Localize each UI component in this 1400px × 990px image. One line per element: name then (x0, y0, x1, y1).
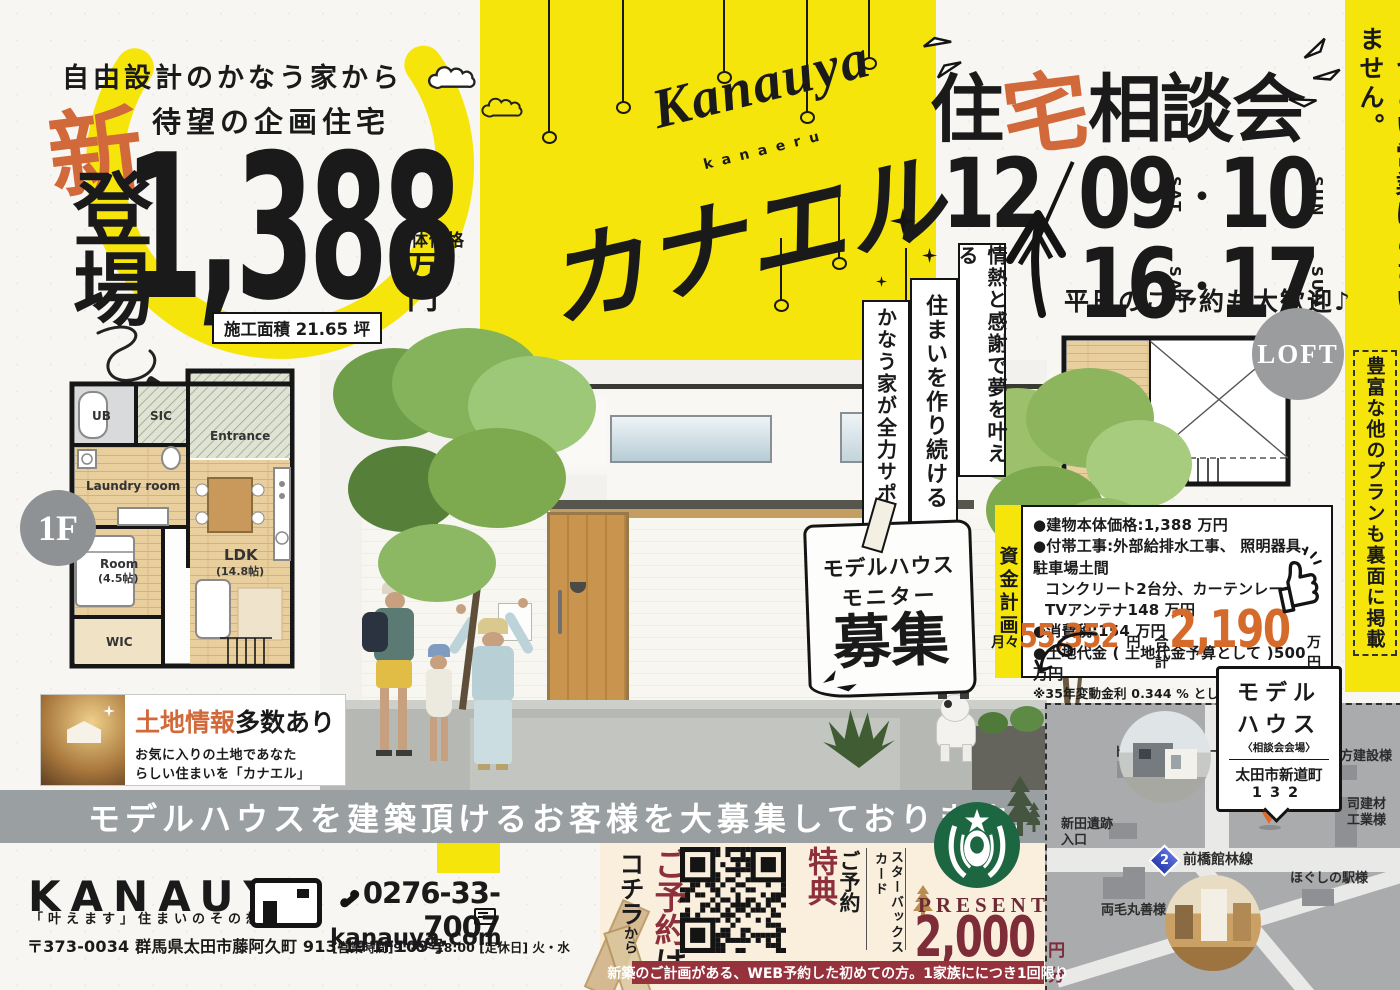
map-photo-interior (1165, 875, 1261, 971)
map-building (1103, 877, 1145, 899)
confetti-icon (836, 678, 856, 694)
burst-icon (1311, 64, 1343, 84)
land-line2: らしい住まいを「カナエル」 (135, 763, 335, 782)
slogan-text: 住まいを作り続ける (918, 294, 950, 510)
date-dot: ・ (1184, 168, 1220, 220)
company-hours: [営業時間]9:00~18:00 [定休日] 火・水 (332, 937, 570, 956)
shrub (978, 712, 1008, 734)
door-handle (558, 590, 562, 634)
bonus-black-col: ご予約 (834, 850, 864, 913)
price-label: 本体価格 (393, 226, 465, 251)
map-building (1123, 867, 1145, 877)
svg-text:Entrance: Entrance (210, 429, 270, 443)
coupon-terms-bar: 新築のご計画がある、WEB予約した初めての方。1家族ににつき1回限り (632, 961, 1044, 984)
monitor-line1: モデルハウス (807, 548, 970, 584)
burst-icon (1298, 36, 1331, 60)
shrub (1010, 706, 1044, 732)
child-figure (422, 644, 458, 774)
map-building (1302, 889, 1334, 906)
cloud-doodle-icon (478, 92, 528, 124)
land-accent: 土地情報 (135, 708, 235, 737)
event-day2-dow: SUN (1308, 176, 1326, 218)
slogan-box-1: 情熱と感謝で夢を叶える (958, 243, 1006, 477)
svg-text:LDK: LDK (224, 546, 259, 564)
land-photo (41, 695, 125, 785)
map-photo-exterior (1119, 711, 1211, 803)
map-callout: モデル ハウス 〈相談会会場〉 太田市新道町 132 (1216, 666, 1342, 812)
yellow-patch-bottom (437, 843, 500, 873)
map-label-ryomo: 両毛丸善様 (1101, 903, 1166, 919)
map-building (1109, 823, 1137, 839)
svg-text:(14.8帖): (14.8帖) (216, 564, 264, 578)
father-figure (360, 582, 420, 772)
family-figures (360, 582, 530, 782)
land-bold: 多数あり (235, 708, 335, 737)
clerestory-window (610, 415, 772, 463)
cta2: コチラ (616, 851, 645, 926)
qr-code (680, 847, 786, 953)
callout-line1: モデル (1223, 675, 1335, 707)
slogan-box-2: 住まいを作り続ける (910, 278, 958, 526)
strip-boxed-text: 豊富な他のプランも裏面に掲載 (1362, 356, 1389, 650)
cta2-small: から (622, 926, 638, 954)
monthly-label: 月々 (991, 632, 1019, 652)
starbucks-logo-icon (934, 802, 1020, 888)
cloud-doodle-icon (424, 60, 482, 96)
callout-line2: ハウス (1223, 707, 1335, 739)
web-icon (474, 908, 496, 925)
monthly-unit: 円 (1127, 632, 1141, 652)
funding-item: ●建物本体価格:1,388 万円 (1033, 515, 1321, 536)
map-label-hogushi: ほぐしの駅様 (1290, 871, 1368, 887)
land-line1: お気に入りの土地であなた (135, 744, 335, 763)
flyer-page: 自由設計のかなう家から 待望の企画住宅 新 登場 1,388 本体価格 万円 施… (0, 0, 1400, 990)
area-badge: 施工面積 21.65 坪 (212, 312, 382, 344)
event-day1-dow: SAT (1166, 176, 1184, 213)
svg-text:(4.5帖): (4.5帖) (98, 571, 139, 585)
floor-badge-loft: LOFT (1252, 308, 1344, 400)
map-label-tsukasa: 司建材工業様 (1347, 797, 1386, 830)
total-value: 2,190 (1169, 607, 1289, 654)
coupon-divider (905, 848, 906, 950)
land-info-banner: 土地情報多数あり お気に入りの土地であなた らしい住まいを「カナエル」 (40, 694, 346, 786)
card-col1: スターバックス (886, 850, 905, 955)
svg-text:WIC: WIC (106, 635, 133, 649)
floor-badge-1f: 1F (20, 490, 96, 566)
price-unit: 万円 (397, 250, 442, 312)
callout-sub: 〈相談会会場〉 (1223, 740, 1335, 755)
map-label-road: 前橋館林線 (1183, 852, 1253, 870)
svg-text:SIC: SIC (150, 409, 172, 423)
strip-boxed: 豊富な他のプランも裏面に掲載 (1353, 350, 1397, 656)
floor-badge-text: LOFT (1257, 339, 1339, 370)
svg-text:Room: Room (100, 557, 138, 571)
map-label-nitta: 新田遺跡入口 (1061, 817, 1113, 850)
company-slogan: 「叶えます」住まいのその想い (30, 908, 282, 927)
svg-text:UB: UB (92, 409, 111, 423)
total-label: 合計 (1155, 632, 1169, 672)
floor-badge-text: 1F (38, 507, 78, 549)
coupon-divider (866, 848, 867, 950)
callout-addr1: 太田市新道町 (1223, 764, 1335, 785)
banner-text: モデルハウスを建築頂けるお客様を大募集しております♪ (0, 794, 1037, 840)
curl-arrow-icon (1032, 628, 1104, 678)
svg-text:Laundry room: Laundry room (86, 479, 180, 493)
strip-main-text: しつこい営業はございません。 (1352, 26, 1400, 342)
monitor-line3: 募集 (809, 608, 973, 675)
monitor-note: モデルハウス モニター 募集 (803, 519, 977, 699)
route-number: 2 (1160, 853, 1169, 868)
dog-figure (926, 692, 982, 762)
coupon-terms: 新築のご計画がある、WEB予約した初めての方。1家族ににつき1回限り (607, 963, 1068, 983)
slogan-text: 情熱と感謝で夢を叶える (953, 245, 1011, 475)
company-logo-icon (250, 878, 322, 928)
